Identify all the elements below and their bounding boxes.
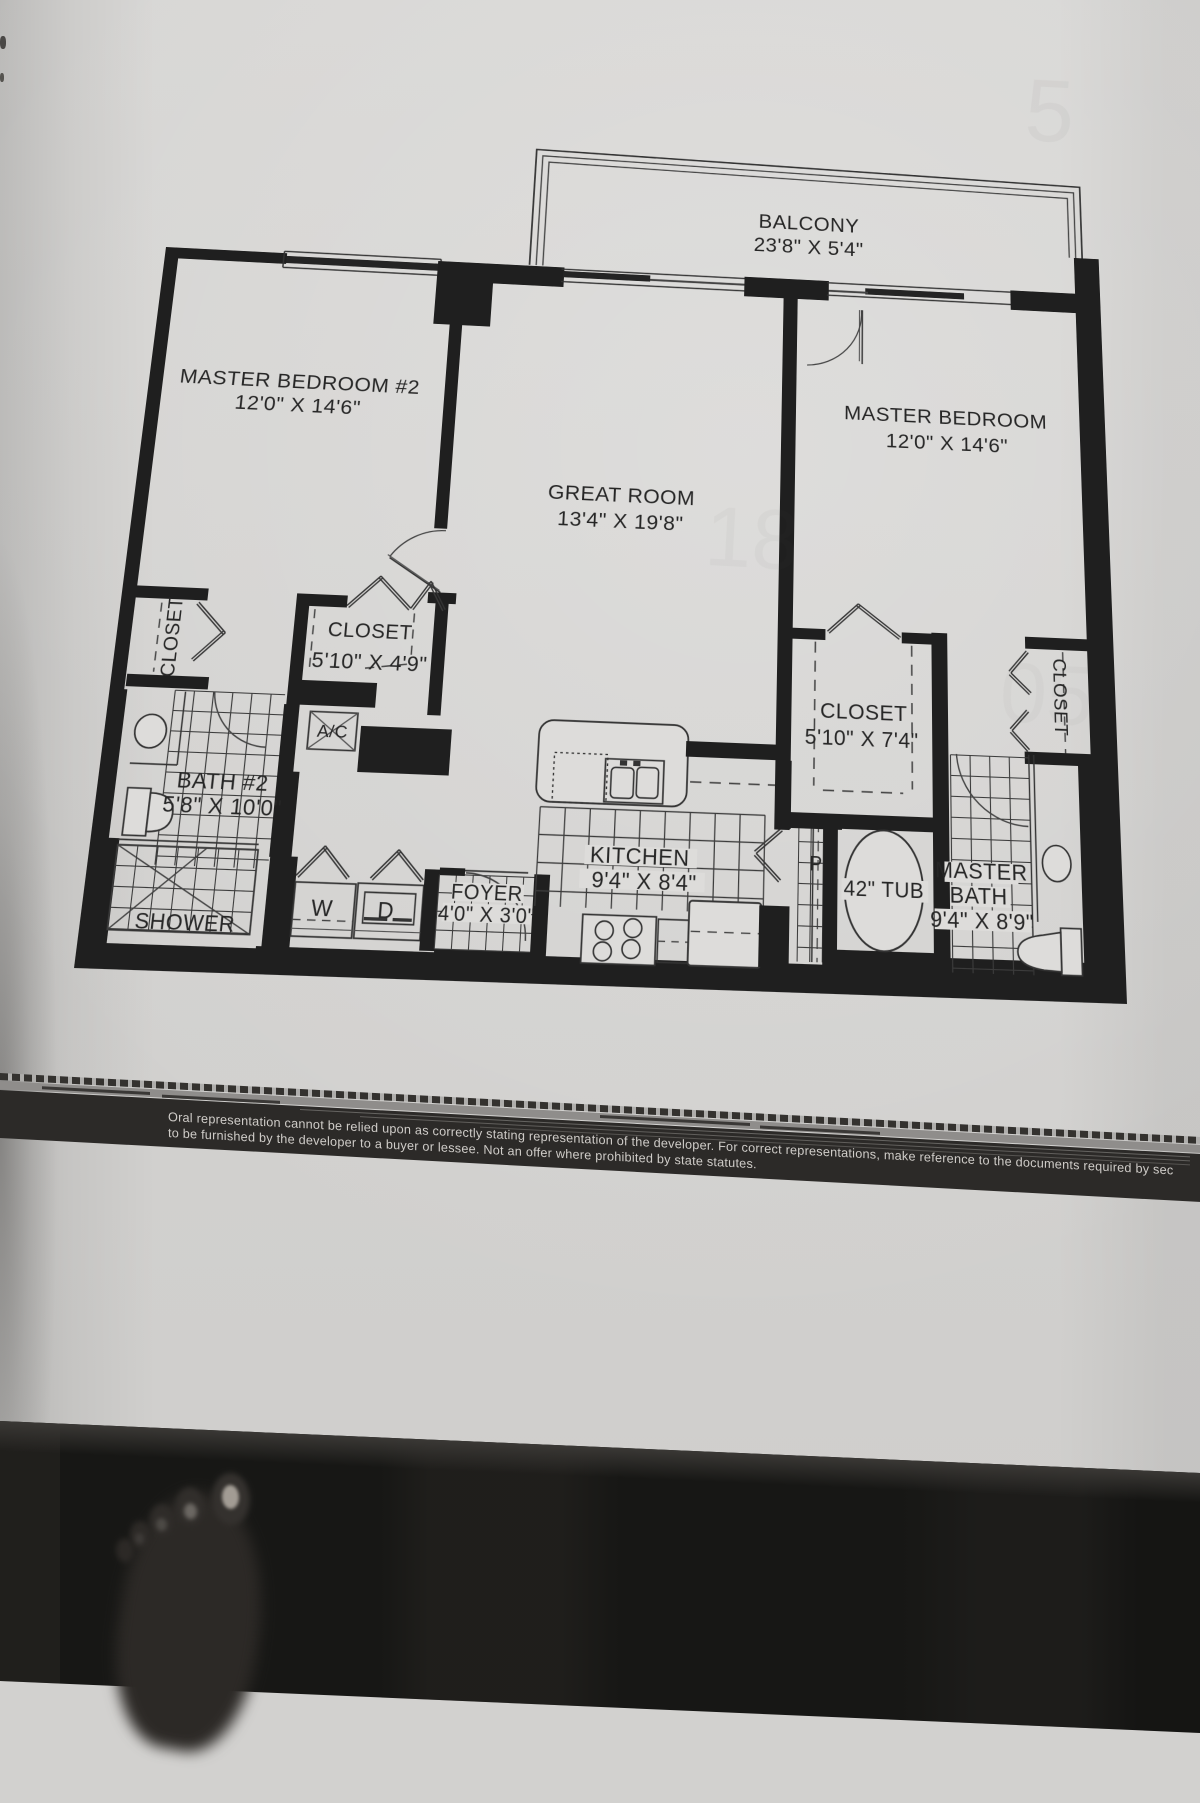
svg-text:5'8" X 10'0": 5'8" X 10'0" [161, 793, 283, 822]
svg-text:CLOSET: CLOSET [156, 596, 188, 677]
svg-text:KITCHEN: KITCHEN [589, 843, 689, 871]
svg-text:9'4" X 8'4": 9'4" X 8'4" [591, 868, 697, 897]
svg-text:12'0" X 14'6": 12'0" X 14'6" [234, 391, 362, 419]
svg-text:5'10" X 4'9": 5'10" X 4'9" [311, 649, 429, 677]
svg-text:5'10" X 7'4": 5'10" X 7'4" [805, 726, 919, 754]
svg-text:MASTER BEDROOM: MASTER BEDROOM [844, 402, 1047, 434]
svg-text:W: W [310, 896, 334, 922]
svg-text:42" TUB: 42" TUB [844, 875, 925, 903]
svg-text:4'0" X 3'0": 4'0" X 3'0" [437, 901, 536, 928]
svg-text:13'4" X 19'8": 13'4" X 19'8" [557, 507, 684, 536]
svg-text:A/C: A/C [316, 722, 349, 743]
svg-text:BATH #2: BATH #2 [175, 769, 269, 797]
svg-text:BALCONY: BALCONY [758, 212, 859, 238]
svg-text:9'4" X 8'9": 9'4" X 8'9" [930, 908, 1034, 937]
svg-text:23'8" X 5'4": 23'8" X 5'4" [753, 235, 863, 262]
svg-text:GREAT ROOM: GREAT ROOM [547, 481, 695, 511]
svg-text:MASTER: MASTER [935, 859, 1028, 887]
svg-text:12'0" X 14'6": 12'0" X 14'6" [886, 430, 1008, 458]
svg-text:SHOWER: SHOWER [133, 908, 236, 937]
svg-text:CLOSET: CLOSET [327, 617, 413, 644]
svg-text:BATH: BATH [950, 884, 1008, 911]
svg-text:P: P [809, 852, 823, 876]
svg-text:CLOSET: CLOSET [820, 700, 907, 727]
